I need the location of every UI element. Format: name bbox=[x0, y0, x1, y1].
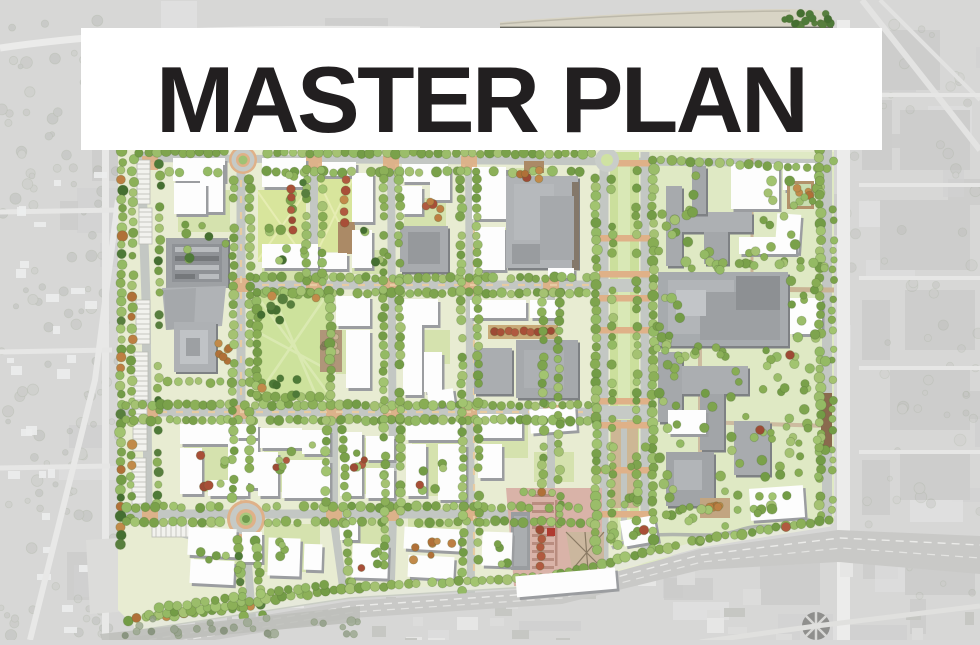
svg-text:MASTER PLAN: MASTER PLAN bbox=[156, 47, 806, 152]
